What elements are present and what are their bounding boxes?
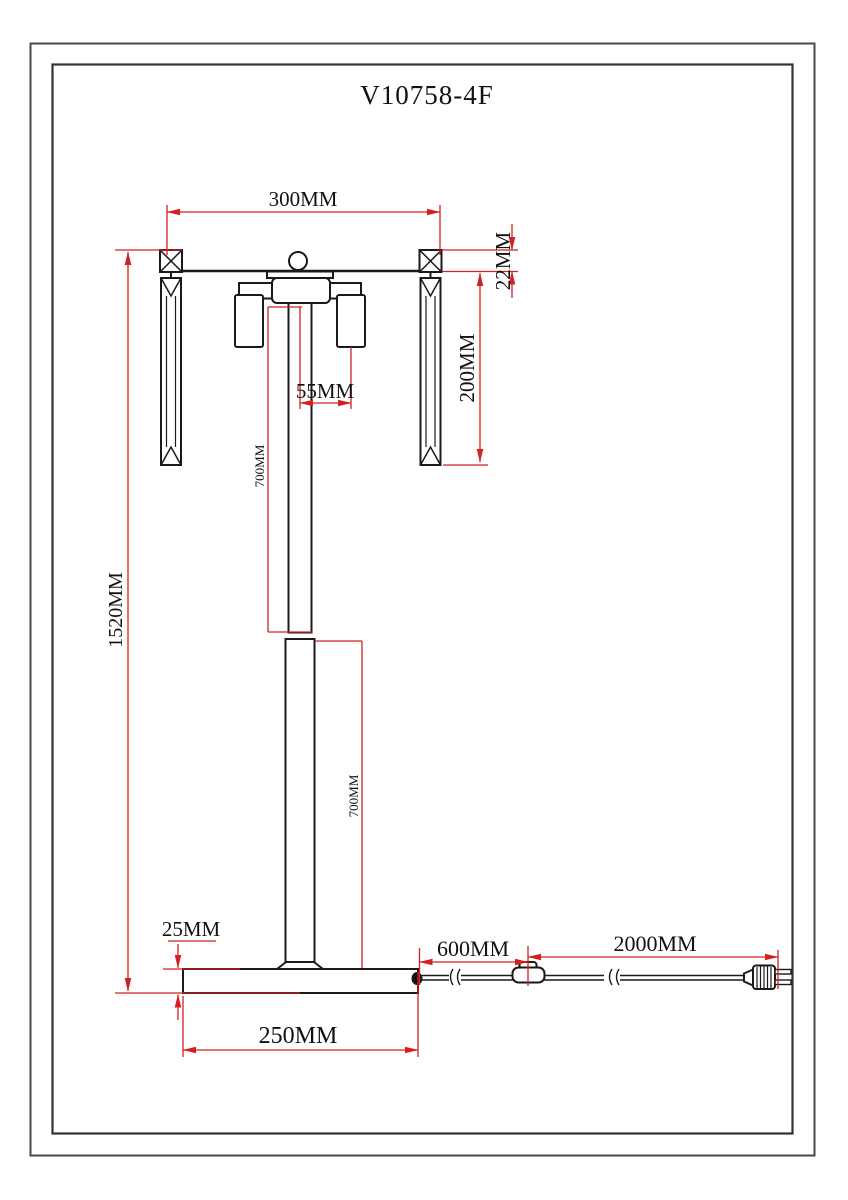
dimension-base-thickness: 25MM: [162, 917, 240, 1020]
dimension-lower-pole: 700MM: [315, 641, 362, 968]
dimension-arm-width: 300MM: [167, 187, 440, 255]
bar-thickness-label: 22MM: [491, 232, 515, 291]
lamp-base: [183, 969, 418, 993]
crystal-length-label: 200MM: [455, 333, 479, 402]
canopy-body: [272, 278, 330, 303]
right-rod-body: [421, 278, 441, 465]
cord-to-plug-label: 2000MM: [613, 931, 696, 956]
pole-foot-flare: [277, 962, 323, 969]
inner-border: [53, 65, 793, 1134]
dimension-cord-to-switch: 600MM: [420, 936, 529, 986]
upper-pole-label: 700MM: [252, 444, 267, 487]
cord-to-switch-label: 600MM: [437, 936, 509, 961]
left-rod-body: [161, 278, 181, 465]
lamp-shade-left: [235, 295, 263, 347]
shade-offset-label: 55MM: [296, 379, 355, 403]
base-thickness-label: 25MM: [162, 917, 221, 941]
dimension-crystal-length: 200MM: [443, 273, 488, 465]
power-plug: [744, 966, 791, 990]
drawing-page: V10758-4F: [0, 0, 848, 1200]
crystal-rod-right: [420, 250, 442, 465]
base-diameter-label: 250MM: [259, 1023, 338, 1049]
pole-lower-tube: [286, 639, 315, 962]
lower-pole-label: 700MM: [346, 774, 361, 817]
total-height-label: 1520MM: [105, 572, 127, 648]
dimension-total-height: 1520MM: [105, 250, 300, 993]
crystal-rod-left: [160, 250, 182, 465]
lamp-shade-right: [337, 295, 365, 347]
outer-border: [31, 44, 815, 1156]
cord-lines: [421, 976, 744, 981]
drawing-border: [31, 44, 815, 1156]
power-cord: [413, 962, 792, 989]
technical-drawing: V10758-4F: [0, 0, 848, 1200]
arm-width-label: 300MM: [269, 187, 338, 211]
plug-boot: [744, 970, 753, 986]
model-number-title: V10758-4F: [360, 80, 494, 110]
finial-ball: [289, 252, 307, 270]
